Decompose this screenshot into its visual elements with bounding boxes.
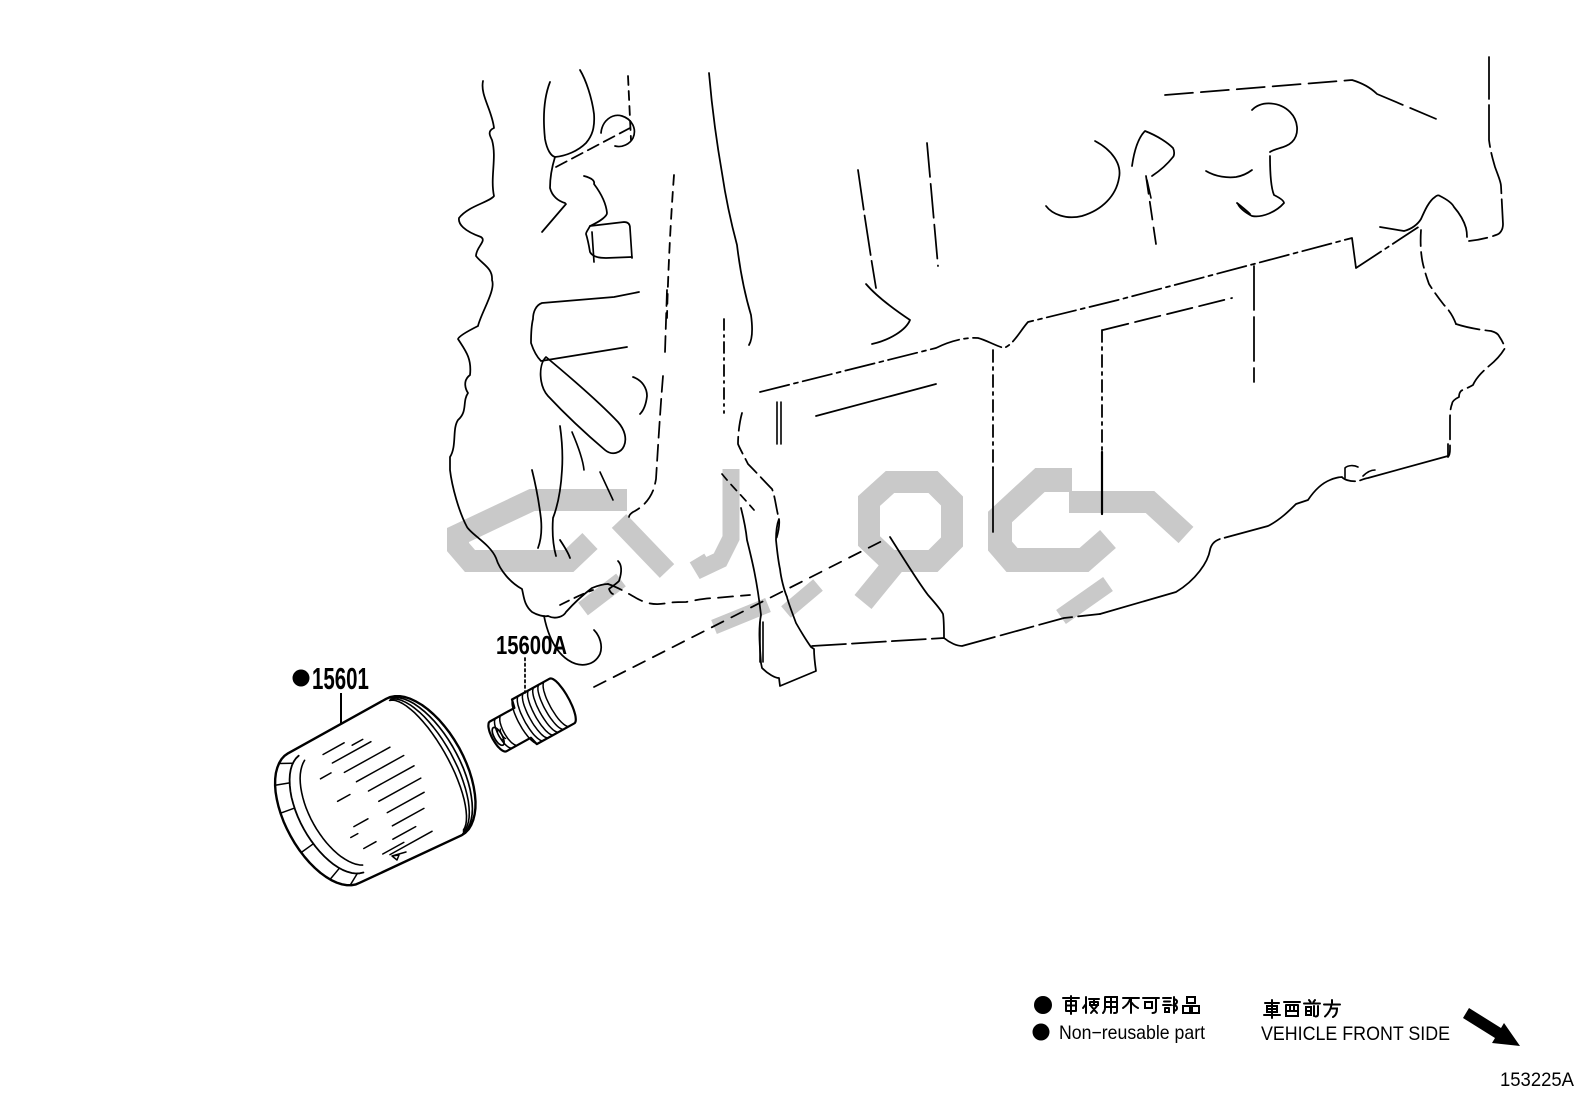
svg-text:VEHICLE FRONT SIDE: VEHICLE FRONT SIDE: [1261, 1023, 1450, 1045]
svg-text:153225A: 153225A: [1500, 1069, 1574, 1091]
svg-text:15600A: 15600A: [496, 631, 567, 660]
svg-text:Non−reusable part: Non−reusable part: [1059, 1022, 1206, 1044]
svg-text:15601: 15601: [312, 661, 369, 696]
